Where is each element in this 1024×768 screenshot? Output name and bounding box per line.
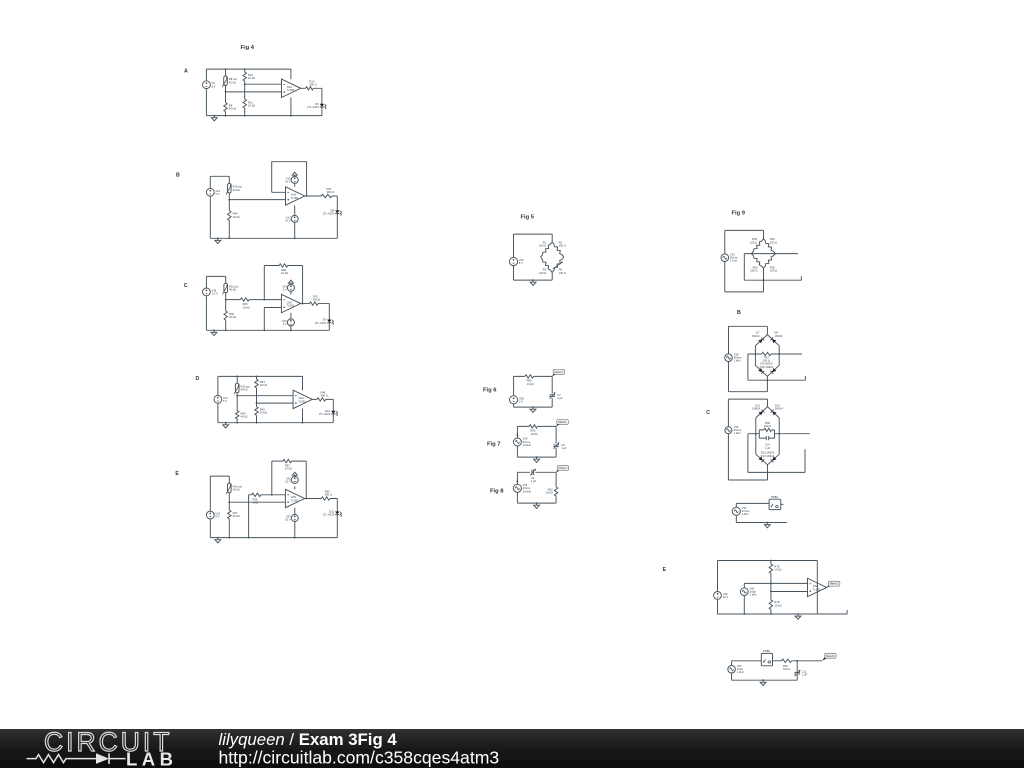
svg-text:1 kHz: 1 kHz [734,359,742,363]
svg-text:1 µF: 1 µF [561,446,567,450]
svg-text:Meter1: Meter1 [559,466,568,470]
svg-text:Meter3: Meter3 [826,654,835,658]
svg-text:10 V: 10 V [285,480,291,484]
svg-text:LTL-4223: LTL-4223 [307,105,319,109]
svg-text:PRB2: PRB2 [763,649,771,653]
svg-text:B: B [737,310,741,316]
svg-text:10 kHz: 10 kHz [523,443,532,447]
svg-text:http://circuitlab.com/c358cqes: http://circuitlab.com/c358cqes4atm3 [219,748,500,768]
svg-text:LTL-4223: LTL-4223 [323,212,335,216]
svg-text:C: C [706,410,710,416]
svg-text:10 kΩ: 10 kΩ [260,411,267,415]
svg-text:1 µF: 1 µF [531,479,537,483]
svg-text:1 kΩ: 1 kΩ [253,501,259,505]
svg-text:A: A [184,69,188,75]
svg-text:1N914: 1N914 [774,334,782,338]
svg-text:40 kΩ: 40 kΩ [229,288,236,292]
svg-text:40 kΩ: 40 kΩ [241,388,248,392]
svg-text:1 kHz: 1 kHz [734,431,742,435]
svg-text:5 V: 5 V [212,84,216,88]
svg-text:40 kΩ: 40 kΩ [233,188,240,192]
svg-text:390 Ω: 390 Ω [325,493,332,497]
svg-text:PRB1: PRB1 [771,495,779,499]
svg-text:40 kΩ: 40 kΩ [233,514,240,518]
svg-text:1 kHz: 1 kHz [750,593,758,597]
svg-text:5 V: 5 V [283,288,287,292]
svg-text:D10:1N914: D10:1N914 [760,365,774,369]
svg-text:40 kΩ: 40 kΩ [229,315,236,319]
svg-text:100 Ω: 100 Ω [539,244,546,248]
svg-text:40 kΩ: 40 kΩ [233,215,240,219]
svg-text:Fig 4: Fig 4 [241,45,255,51]
svg-text:Meter1: Meter1 [555,370,564,374]
svg-text:1 kHz: 1 kHz [737,670,745,674]
svg-text:40 kΩ: 40 kΩ [229,80,236,84]
svg-text:390 Ω: 390 Ω [321,394,328,398]
svg-text:1N914: 1N914 [752,407,760,411]
svg-text:TL081: TL081 [291,196,299,200]
svg-text:390 Ω: 390 Ω [327,190,334,194]
svg-text:1 µF: 1 µF [557,396,563,400]
svg-text:1.2 V: 1.2 V [212,292,218,296]
svg-text:100 Ω: 100 Ω [559,244,566,248]
svg-text:D: D [196,376,200,382]
svg-text:10 kΩ: 10 kΩ [248,104,255,108]
svg-text:5 V: 5 V [223,399,227,403]
svg-text:1 µF: 1 µF [802,673,808,677]
svg-text:Fig 8: Fig 8 [490,489,504,495]
svg-text:100 Ω: 100 Ω [783,667,790,671]
svg-text:5 V: 5 V [215,192,219,196]
svg-text:10 kHz: 10 kHz [523,489,532,493]
svg-text:LTL-4223: LTL-4223 [319,412,331,416]
svg-text:LTL-4223: LTL-4223 [315,321,327,325]
svg-text:40 kΩ: 40 kΩ [241,415,248,419]
svg-text:B: B [176,173,180,179]
svg-text:1N914: 1N914 [775,407,783,411]
svg-text:10 V: 10 V [723,595,729,599]
svg-text:390 Ω: 390 Ω [313,298,320,302]
svg-text:TL081: TL081 [813,587,821,591]
svg-text:10 kΩ: 10 kΩ [546,491,553,495]
svg-text:390 Ω: 390 Ω [309,83,316,87]
svg-text:E: E [663,567,667,573]
svg-text:100 Ω: 100 Ω [764,424,771,428]
svg-text:Fig 7: Fig 7 [487,442,501,448]
svg-text:40 kΩ: 40 kΩ [229,107,236,111]
svg-text:TL081: TL081 [291,498,299,502]
svg-text:10 kΩ: 10 kΩ [260,383,267,387]
svg-text:10 kΩ: 10 kΩ [774,568,781,572]
svg-text:100 Ω: 100 Ω [750,240,757,244]
svg-text:10 kΩ: 10 kΩ [281,271,288,275]
svg-text:Fig 9: Fig 9 [732,210,746,216]
svg-text:C: C [184,283,188,289]
svg-text:1N914: 1N914 [752,334,760,338]
svg-text:10 kΩ: 10 kΩ [285,467,292,471]
svg-text:TL081: TL081 [298,399,306,403]
svg-text:10 V: 10 V [285,219,291,223]
svg-text:10 V: 10 V [285,180,291,184]
svg-text:5 V: 5 V [519,400,523,404]
svg-text:10 kΩ: 10 kΩ [527,382,534,386]
svg-text:Fig 6: Fig 6 [483,388,497,394]
svg-text:10 kΩ: 10 kΩ [243,305,250,309]
svg-text:10 kΩ: 10 kΩ [774,603,781,607]
svg-text:10 kΩ: 10 kΩ [248,76,255,80]
svg-text:100 Ω: 100 Ω [750,269,757,273]
svg-text:100 Ω: 100 Ω [770,240,777,244]
svg-text:5 V: 5 V [283,322,287,326]
svg-text:100 Ω: 100 Ω [770,269,777,273]
svg-text:10 kΩ: 10 kΩ [530,432,537,436]
svg-text:lilyqueen / Exam 3Fig 4: lilyqueen / Exam 3Fig 4 [219,730,398,749]
svg-text:TL081: TL081 [287,88,295,92]
svg-text:1 µF: 1 µF [765,446,771,450]
svg-text:100 Ω: 100 Ω [539,271,546,275]
svg-text:LAB: LAB [126,749,178,768]
svg-text:Meter1: Meter1 [558,420,567,424]
svg-text:Meter2: Meter2 [830,582,839,586]
svg-text:LTL-4223: LTL-4223 [323,513,335,517]
svg-text:E: E [175,471,179,477]
svg-text:5 V: 5 V [215,515,219,519]
svg-text:D14:1N914: D14:1N914 [761,454,775,458]
svg-text:TL081: TL081 [287,303,295,307]
svg-text:100 Ω: 100 Ω [559,271,566,275]
svg-text:Fig 5: Fig 5 [521,215,535,221]
svg-text:1 kHz: 1 kHz [730,259,738,263]
svg-text:40 kΩ: 40 kΩ [233,488,240,492]
svg-text:5 V: 5 V [519,261,523,265]
svg-text:1 kHz: 1 kHz [742,512,750,516]
svg-text:10 V: 10 V [285,518,291,522]
